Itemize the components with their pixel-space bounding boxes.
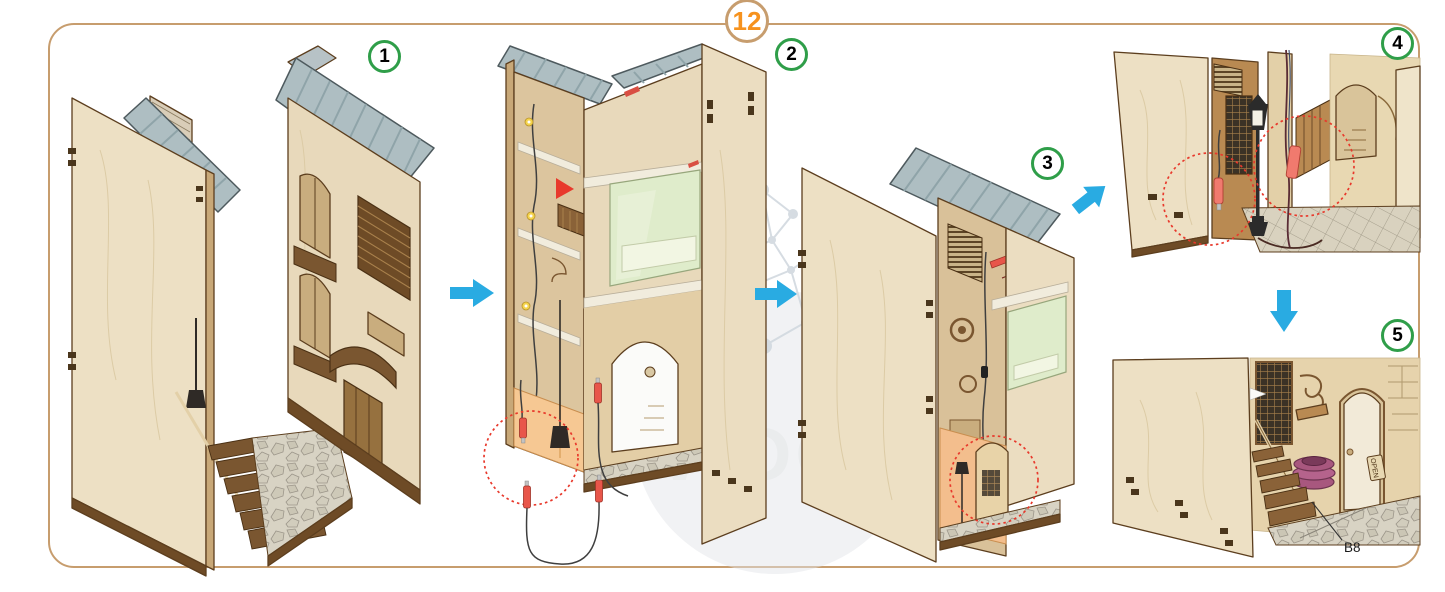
arched-door: [1340, 389, 1384, 514]
side-wall-panel: [1113, 358, 1253, 557]
arrow-down-icon: [1270, 290, 1298, 332]
power-connector: [520, 418, 527, 438]
step-badge-3: 3: [1031, 147, 1064, 180]
step-badge-1: 1: [368, 40, 401, 73]
arched-passage: [612, 342, 678, 452]
model-step3-assembly: [798, 148, 1074, 562]
side-wall-panel: [1114, 52, 1208, 250]
vent-grille: [1214, 64, 1242, 96]
step-badge-4: 4: [1381, 27, 1414, 60]
arched-door: [976, 443, 1008, 520]
side-wall-panel: [72, 98, 206, 566]
side-wall-panel: [802, 168, 936, 562]
power-connector: [1214, 178, 1223, 204]
instruction-page: WOO: [0, 0, 1445, 592]
panel-step4-closeup: [1114, 50, 1420, 257]
step-badge-5: 5: [1381, 319, 1414, 352]
lattice-window: [1226, 96, 1252, 174]
assembly-artwork: WOO: [0, 0, 1445, 592]
arrow-right-icon: [450, 279, 494, 307]
power-connector: [595, 383, 602, 403]
step-badge-2: 2: [775, 38, 808, 71]
stair-railing: [1296, 100, 1330, 178]
main-step-badge: 12: [725, 0, 769, 43]
arrow-up-right-icon: [1067, 176, 1113, 220]
cable-clip: [981, 366, 988, 378]
panel-step5-closeup: OPEN: [1113, 358, 1420, 557]
model-step2-exploded: [484, 44, 766, 564]
part-label: B8: [1344, 540, 1361, 555]
green-glass-panel: [610, 170, 700, 286]
tiled-floor: [1242, 206, 1420, 252]
